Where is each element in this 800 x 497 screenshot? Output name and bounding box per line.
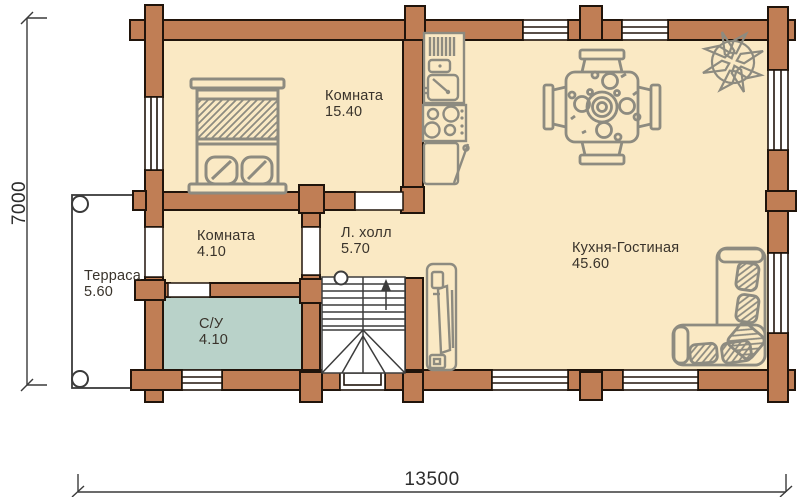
room-area: 5.60: [84, 284, 141, 300]
dimension-height-label: 7000: [9, 171, 31, 235]
room-name: Комната: [325, 88, 383, 104]
terrace-door-opening: [145, 227, 163, 277]
room-label-stair-hall: Л. холл 5.70: [341, 225, 392, 257]
room-name: Л. холл: [341, 225, 392, 241]
room-area: 4.10: [199, 332, 228, 348]
room-area: 15.40: [325, 104, 383, 120]
window-top-1: [523, 20, 568, 40]
stairs-icon: [322, 272, 405, 374]
window-bottom-bathroom: [182, 370, 222, 390]
room-label-small-room: Комната 4.10: [197, 228, 255, 260]
stove-icon: [423, 105, 466, 141]
room-label-bathroom: С/У 4.10: [199, 316, 228, 348]
floor-plan-canvas: Комната 15.40 Комната 4.10 Л. холл 5.70 …: [0, 0, 800, 497]
window-bottom-1: [492, 370, 568, 390]
window-bottom-2: [623, 370, 698, 390]
room-label-terrace: Терраса 5.60: [84, 268, 141, 300]
room-area: 4.10: [197, 244, 255, 260]
room-area: 45.60: [572, 256, 679, 272]
room-label-bedroom: Комната 15.40: [325, 88, 383, 120]
floor-plan-drawing: [0, 0, 800, 497]
small-room-door-opening: [302, 227, 320, 275]
room-label-kitchen-living: Кухня-Гостиная 45.60: [572, 240, 679, 272]
bedroom-door-opening: [355, 192, 403, 210]
kitchen-sink-icon: [424, 33, 464, 103]
room-name: Терраса: [84, 268, 141, 284]
terrace-post-icon: [72, 196, 88, 212]
room-name: С/У: [199, 316, 223, 332]
window-right-1: [768, 70, 788, 150]
window-top-2: [622, 20, 668, 40]
window-right-2: [768, 253, 788, 333]
room-area: 5.70: [341, 241, 392, 257]
bathroom-door-opening: [168, 283, 210, 297]
stair-newel-post: [335, 272, 348, 285]
room-name: Комната: [197, 228, 255, 244]
terrace-post-icon: [72, 371, 88, 387]
room-name: Кухня-Гостиная: [572, 240, 679, 256]
kitchen-block: [423, 33, 469, 184]
bathroom-floor: [163, 297, 302, 370]
dimension-width-label: 13500: [397, 469, 467, 491]
window-left-bedroom: [145, 97, 163, 170]
